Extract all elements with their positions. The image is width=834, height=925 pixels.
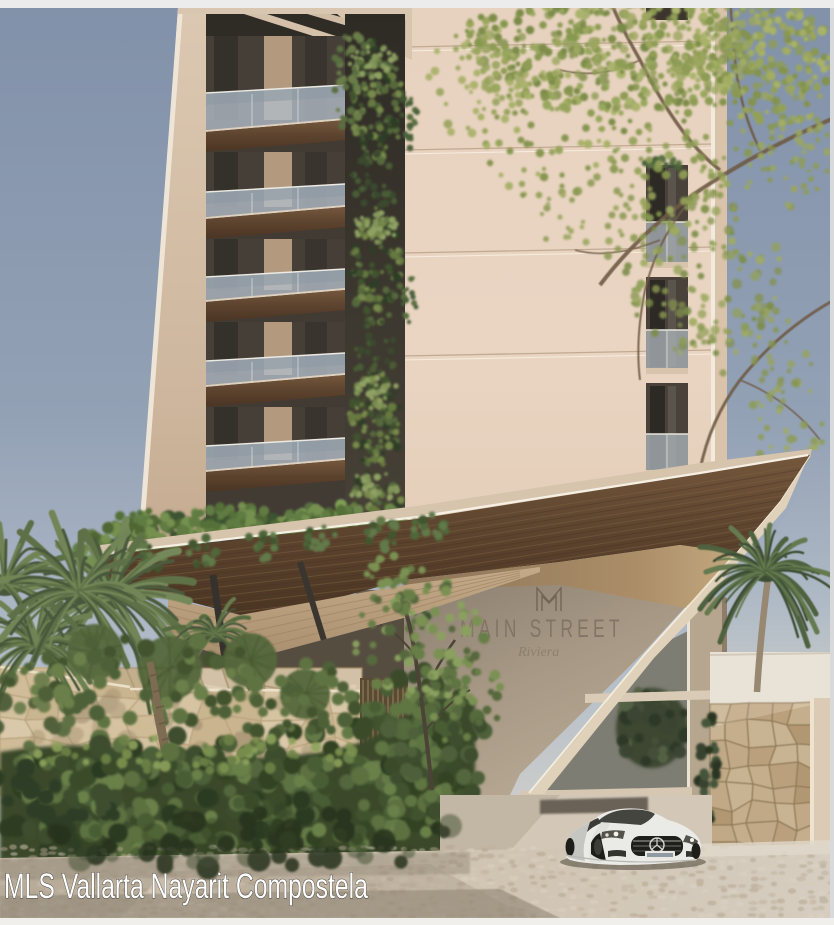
svg-text:MLS Vallarta Nayarit Compostel: MLS Vallarta Nayarit Compostela xyxy=(4,868,368,906)
svg-text:Riviera: Riviera xyxy=(517,645,559,660)
